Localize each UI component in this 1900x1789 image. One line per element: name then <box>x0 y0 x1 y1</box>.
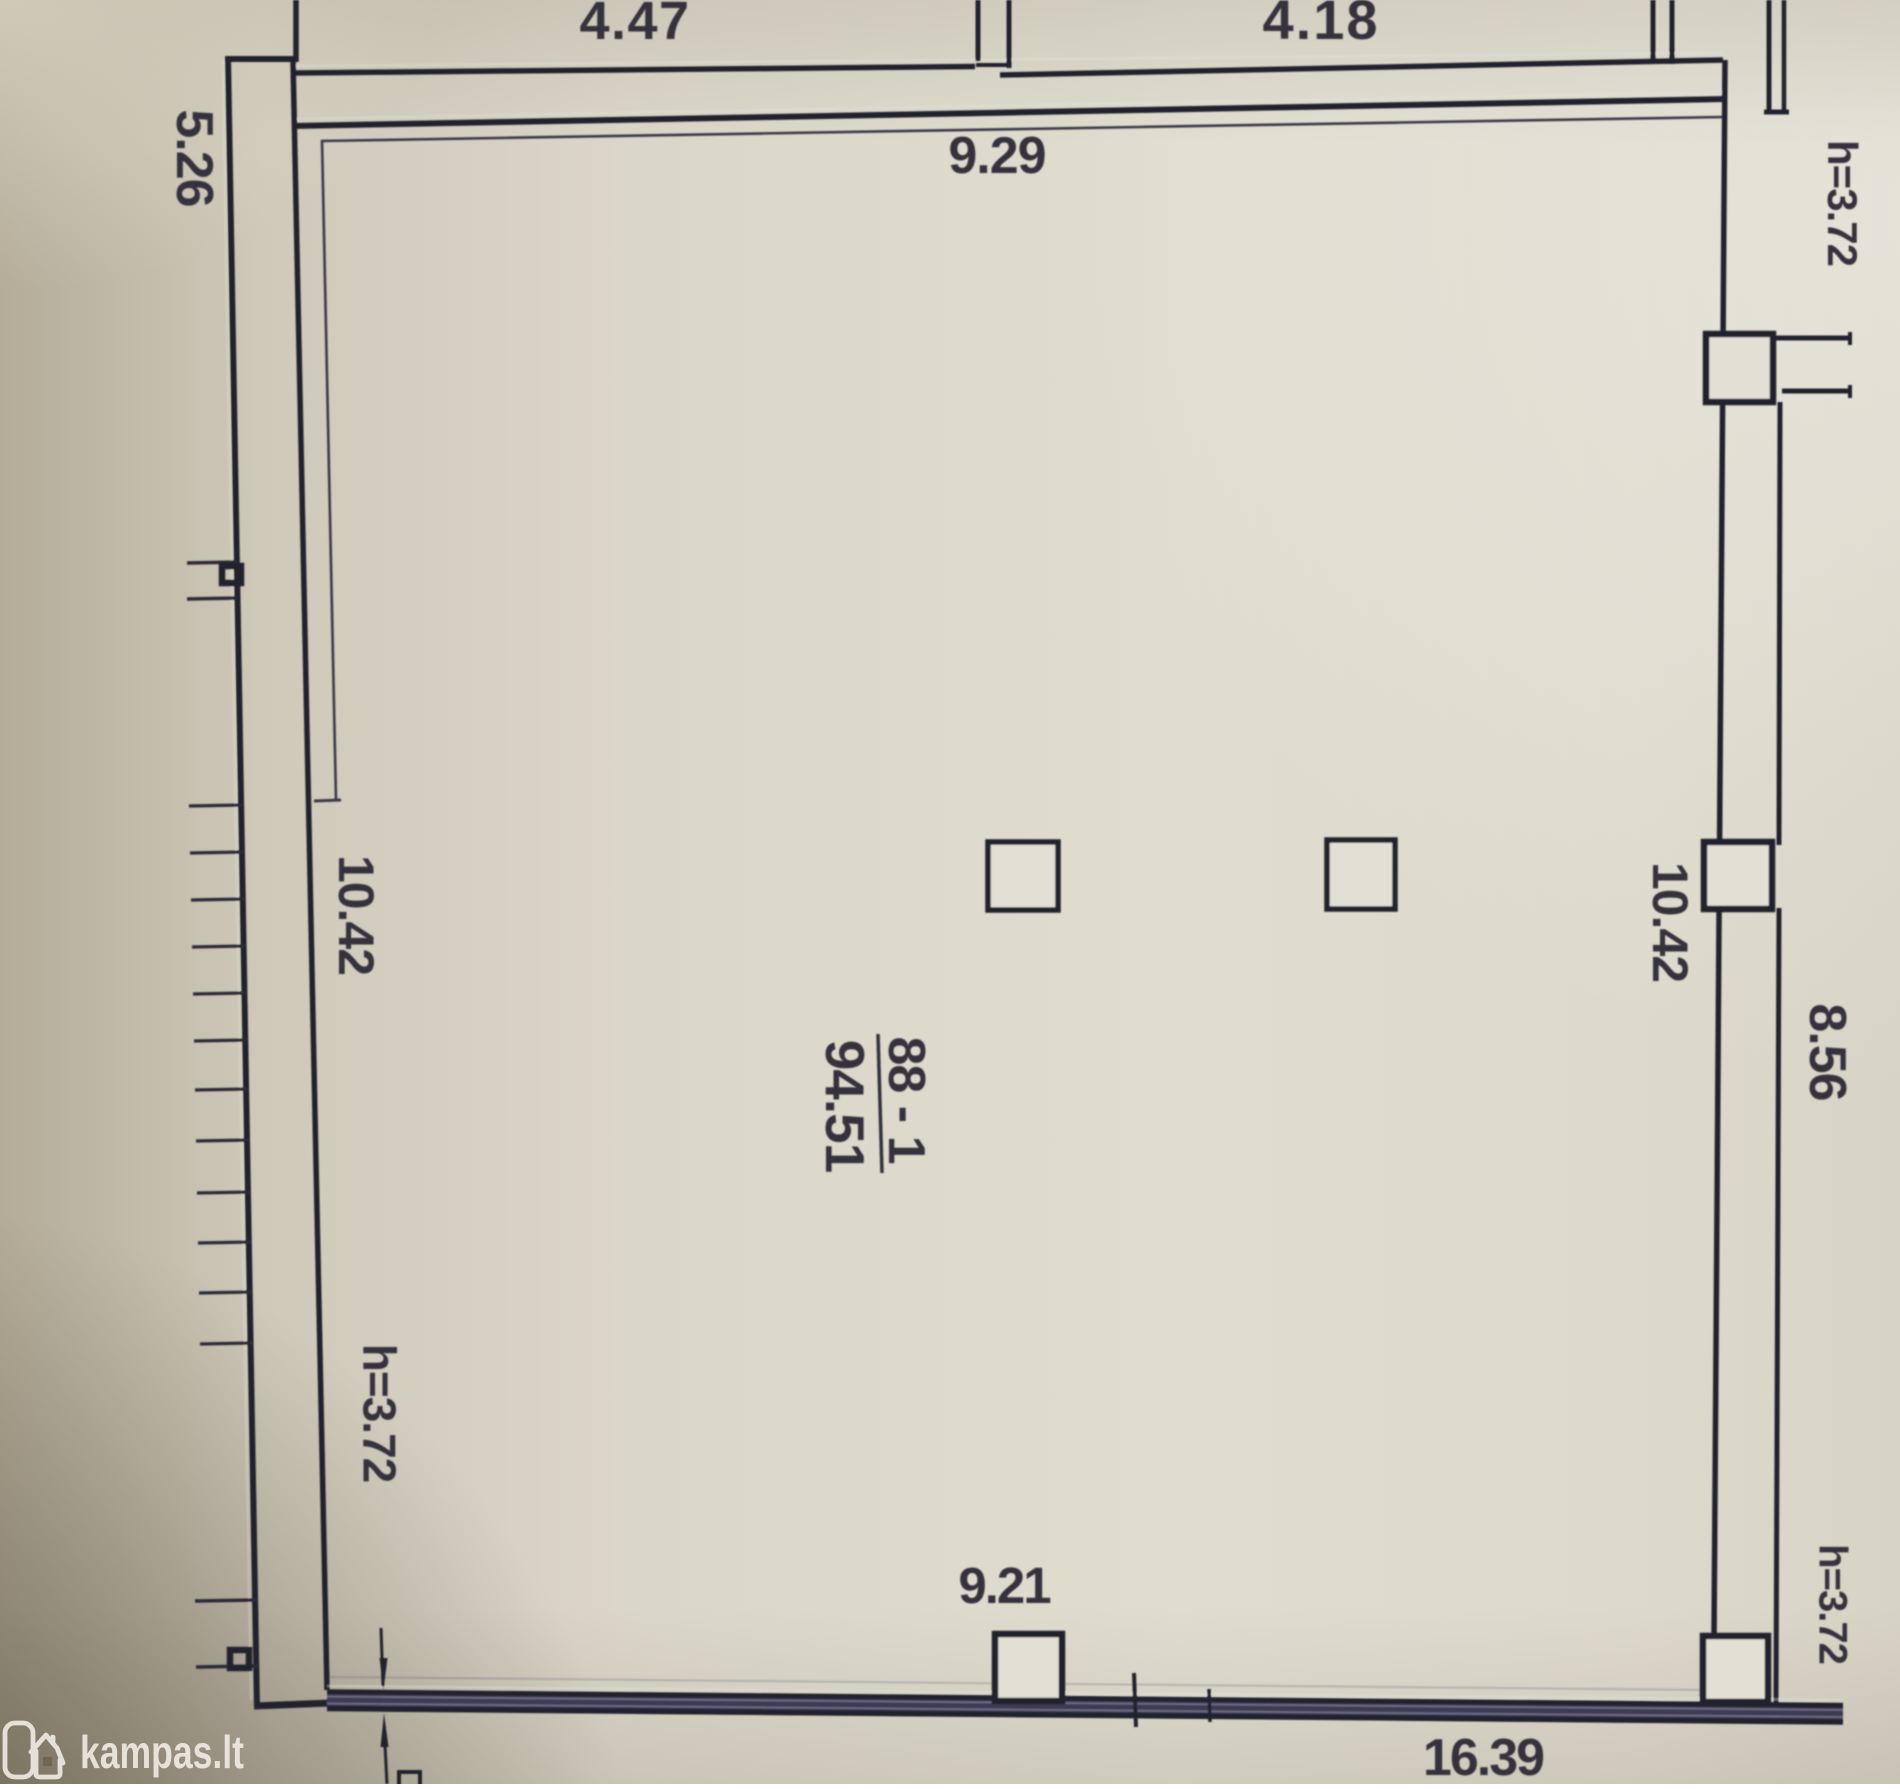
svg-text:h=3.72: h=3.72 <box>1811 1544 1855 1664</box>
svg-text:9.29: 9.29 <box>948 127 1045 185</box>
svg-text:9.21: 9.21 <box>958 1557 1050 1614</box>
svg-text:5.26: 5.26 <box>165 109 223 206</box>
svg-text:4.18: 4.18 <box>1263 0 1380 51</box>
svg-text:88 - 1: 88 - 1 <box>877 1037 935 1164</box>
svg-text:kampas.lt: kampas.lt <box>80 1726 244 1778</box>
svg-text:94.51: 94.51 <box>814 1040 876 1173</box>
svg-text:4.47: 4.47 <box>579 0 690 51</box>
svg-text:10.42: 10.42 <box>328 855 384 975</box>
svg-text:16.39: 16.39 <box>1423 1729 1543 1784</box>
svg-text:10.42: 10.42 <box>1642 862 1698 982</box>
svg-text:8.56: 8.56 <box>1798 1003 1856 1100</box>
svg-text:h=3.72: h=3.72 <box>354 1344 406 1483</box>
svg-text:h=3.72: h=3.72 <box>1819 140 1866 266</box>
